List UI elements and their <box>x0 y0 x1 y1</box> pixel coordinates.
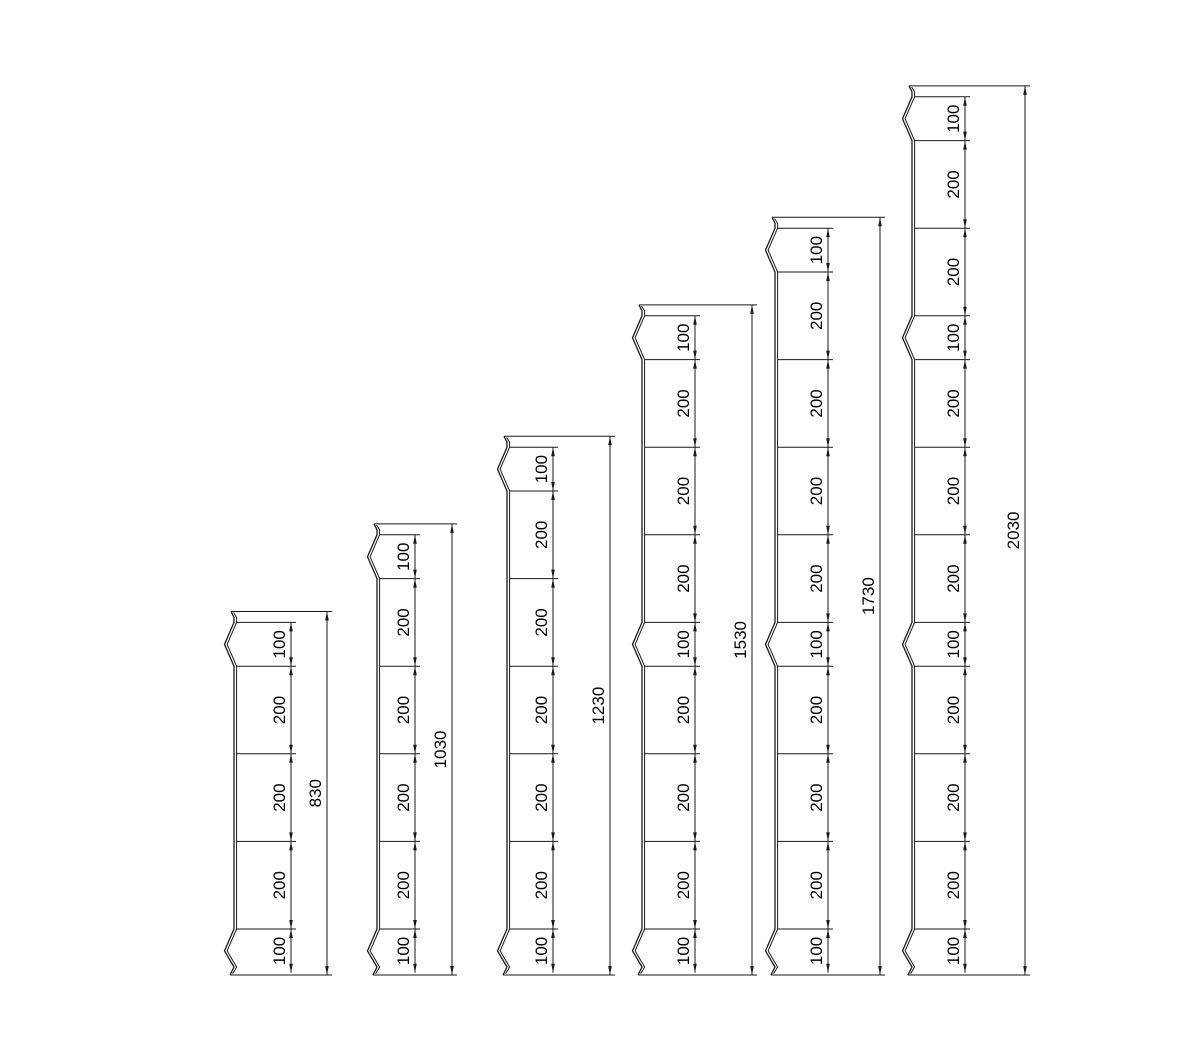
dimension-arrow <box>551 579 555 588</box>
overall-dim-label: 1530 <box>731 621 750 659</box>
dimension-arrow <box>963 97 967 106</box>
dimension-arrow <box>551 491 555 500</box>
dimension-arrow <box>289 754 293 763</box>
segment-dim-label: 200 <box>807 302 826 330</box>
segment-dim-label: 100 <box>270 937 289 965</box>
dimension-arrow <box>693 438 697 447</box>
dimension-arrow <box>413 841 417 850</box>
profile-column-1530: 1002002002001002002002001001530 <box>633 305 758 975</box>
dimension-arrow <box>826 438 830 447</box>
dimension-arrow <box>413 920 417 929</box>
dimension-arrow <box>413 929 417 938</box>
segment-dim-label: 200 <box>807 783 826 811</box>
profile-outline-inner <box>905 87 915 974</box>
segment-dim-label: 100 <box>532 937 551 965</box>
dimension-arrow <box>826 272 830 281</box>
profile-column-1230: 1002002002002002001001230 <box>498 436 616 975</box>
dimension-arrow <box>963 132 967 141</box>
dimension-arrow <box>750 966 754 975</box>
dimension-arrow <box>693 613 697 622</box>
dimension-arrow <box>963 841 967 850</box>
segment-dim-label: 200 <box>532 871 551 899</box>
dimension-arrow <box>289 964 293 973</box>
profile-outline-outer <box>225 611 235 975</box>
profile-outline-inner <box>500 437 510 973</box>
dimension-arrow <box>826 745 830 754</box>
dimension-arrow <box>826 447 830 456</box>
dimension-arrow <box>826 613 830 622</box>
dimension-arrow <box>1023 966 1027 975</box>
dimension-arrow <box>693 754 697 763</box>
profile-outline-inner <box>370 525 380 974</box>
dimension-arrow <box>826 929 830 938</box>
profile-outline-outer <box>498 436 508 975</box>
segment-dim-label: 200 <box>807 477 826 505</box>
dimension-arrow <box>551 964 555 973</box>
dimension-arrow <box>693 351 697 360</box>
dimension-arrow <box>826 263 830 272</box>
dimension-arrow <box>963 964 967 973</box>
segment-dim-label: 100 <box>674 937 693 965</box>
overall-dim-label: 2030 <box>1004 512 1023 550</box>
segment-dim-label: 200 <box>807 871 826 899</box>
segment-dim-label: 100 <box>944 937 963 965</box>
segment-dim-label: 200 <box>270 783 289 811</box>
profile-column-1030: 1002002002002001001030 <box>368 524 458 975</box>
dimension-arrow <box>693 535 697 544</box>
segment-dim-label: 100 <box>807 236 826 264</box>
segment-dim-label: 200 <box>944 389 963 417</box>
dimension-arrow <box>826 351 830 360</box>
dimension-arrow <box>693 316 697 325</box>
dimension-arrow <box>450 524 454 533</box>
dimension-arrow <box>551 570 555 579</box>
dimension-arrow <box>450 966 454 975</box>
technical-drawing-page: 1002002002001008301002002002002001001030… <box>0 0 1201 1048</box>
dimension-arrow <box>608 436 612 445</box>
dimension-arrow <box>551 482 555 491</box>
dimension-arrow <box>826 841 830 850</box>
profile-outline-outer <box>766 217 776 975</box>
dimension-arrow <box>826 666 830 675</box>
dimension-arrow <box>289 841 293 850</box>
segment-dim-label: 200 <box>532 783 551 811</box>
overall-dim-label: 1230 <box>589 687 608 725</box>
dimension-arrow <box>963 526 967 535</box>
dimension-arrow <box>551 841 555 850</box>
dimension-arrow <box>413 754 417 763</box>
dimension-arrow <box>551 832 555 841</box>
profile-outline-inner <box>635 306 645 974</box>
segment-dim-label: 100 <box>394 543 413 571</box>
dimension-arrow <box>878 966 882 975</box>
overall-dim-label: 830 <box>306 779 325 807</box>
segment-dim-label: 200 <box>270 871 289 899</box>
dimension-arrow <box>826 964 830 973</box>
dimension-arrow <box>693 447 697 456</box>
segment-dim-label: 200 <box>944 258 963 286</box>
dimension-arrow <box>693 964 697 973</box>
segment-dim-label: 100 <box>944 105 963 133</box>
dimension-arrow <box>963 535 967 544</box>
segment-dim-label: 200 <box>807 389 826 417</box>
dimension-arrow <box>826 622 830 631</box>
segment-dim-label: 200 <box>394 783 413 811</box>
dimension-arrow <box>413 964 417 973</box>
dimension-arrow <box>963 351 967 360</box>
segment-dim-label: 100 <box>674 324 693 352</box>
dimension-arrow <box>413 666 417 675</box>
dimension-arrow <box>413 745 417 754</box>
segment-dim-label: 200 <box>674 477 693 505</box>
dimension-arrow <box>693 841 697 850</box>
dimension-arrow <box>750 305 754 314</box>
dimension-arrow <box>693 832 697 841</box>
dimension-arrow <box>693 622 697 631</box>
profile-outline-inner <box>227 613 237 974</box>
dimension-arrow <box>693 745 697 754</box>
dimension-arrow <box>551 666 555 675</box>
dimension-arrow <box>826 920 830 929</box>
dimension-arrow <box>963 832 967 841</box>
dimension-arrow <box>289 920 293 929</box>
dimension-arrow <box>551 447 555 456</box>
segment-dim-label: 200 <box>270 696 289 724</box>
dimension-arrow <box>693 929 697 938</box>
dimension-arrow <box>413 579 417 588</box>
dimension-arrow <box>551 745 555 754</box>
dimension-arrow <box>289 622 293 631</box>
dimension-arrow <box>413 570 417 579</box>
segment-dim-label: 200 <box>394 696 413 724</box>
segment-dim-label: 200 <box>807 696 826 724</box>
segment-dim-label: 100 <box>532 455 551 483</box>
dimension-arrow <box>963 657 967 666</box>
segment-dim-label: 200 <box>532 696 551 724</box>
dimension-arrow <box>826 754 830 763</box>
dimension-arrow <box>963 307 967 316</box>
dimension-arrow <box>963 745 967 754</box>
dimension-arrow <box>826 657 830 666</box>
dimension-arrow <box>826 526 830 535</box>
segment-dim-label: 200 <box>394 608 413 636</box>
dimension-arrow <box>551 754 555 763</box>
dimension-arrow <box>963 447 967 456</box>
segment-dim-label: 200 <box>674 564 693 592</box>
dimension-arrow <box>551 657 555 666</box>
dimension-arrow <box>963 613 967 622</box>
segment-dim-label: 200 <box>944 783 963 811</box>
segment-dim-label: 200 <box>674 871 693 899</box>
dimension-arrow <box>826 832 830 841</box>
dimension-arrow <box>693 920 697 929</box>
dimension-arrow <box>963 219 967 228</box>
dimension-arrow <box>693 526 697 535</box>
dimension-arrow <box>289 832 293 841</box>
dimension-arrow <box>325 611 329 620</box>
overall-dim-label: 1730 <box>859 577 878 615</box>
dimension-arrow <box>551 920 555 929</box>
dimension-arrow <box>826 228 830 237</box>
segment-dim-label: 200 <box>944 564 963 592</box>
segment-dim-label: 200 <box>674 389 693 417</box>
segment-dim-label: 100 <box>394 937 413 965</box>
profile-column-2030: 1002002001002002002001002002002001002030 <box>903 86 1031 975</box>
dimension-arrow <box>289 929 293 938</box>
profile-column-830: 100200200200100830 <box>225 611 333 975</box>
dimension-arrow <box>963 622 967 631</box>
dimension-arrow <box>608 966 612 975</box>
segment-dim-label: 100 <box>807 630 826 658</box>
segment-dim-label: 200 <box>944 170 963 198</box>
dimension-arrow <box>413 832 417 841</box>
palisade-post-drawing: 1002002002001008301002002002002001001030… <box>0 0 1201 1048</box>
segment-dim-label: 100 <box>944 324 963 352</box>
segment-dim-label: 200 <box>532 608 551 636</box>
dimension-arrow <box>413 657 417 666</box>
segment-dim-label: 100 <box>270 630 289 658</box>
dimension-arrow <box>878 217 882 226</box>
segment-dim-label: 200 <box>944 477 963 505</box>
dimension-arrow <box>963 929 967 938</box>
dimension-arrow <box>826 535 830 544</box>
segment-dim-label: 100 <box>674 630 693 658</box>
segment-dim-label: 200 <box>807 564 826 592</box>
dimension-arrow <box>289 657 293 666</box>
overall-dim-label: 1030 <box>431 731 450 769</box>
dimension-arrow <box>325 966 329 975</box>
dimension-arrow <box>693 657 697 666</box>
dimension-arrow <box>963 666 967 675</box>
profile-outline-outer <box>368 524 378 975</box>
dimension-arrow <box>289 745 293 754</box>
dimension-arrow <box>693 666 697 675</box>
segment-dim-label: 200 <box>944 696 963 724</box>
dimension-arrow <box>693 360 697 369</box>
segment-dim-label: 100 <box>807 937 826 965</box>
dimension-arrow <box>413 535 417 544</box>
segment-dim-label: 100 <box>944 630 963 658</box>
dimension-arrow <box>963 141 967 150</box>
dimension-arrow <box>963 360 967 369</box>
dimension-arrow <box>963 438 967 447</box>
segment-dim-label: 200 <box>944 871 963 899</box>
dimension-arrow <box>1023 86 1027 95</box>
profile-outline-inner <box>768 218 778 973</box>
profile-column-1730: 1002002002002001002002002001001730 <box>766 217 886 975</box>
dimension-arrow <box>963 754 967 763</box>
segment-dim-label: 200 <box>674 783 693 811</box>
dimension-arrow <box>963 920 967 929</box>
profile-outline-outer <box>903 86 913 975</box>
dimension-arrow <box>963 228 967 237</box>
segment-dim-label: 200 <box>394 871 413 899</box>
segment-dim-label: 200 <box>674 696 693 724</box>
segment-dim-label: 200 <box>532 521 551 549</box>
dimension-arrow <box>963 316 967 325</box>
dimension-arrow <box>826 360 830 369</box>
dimension-arrow <box>289 666 293 675</box>
dimension-arrow <box>551 929 555 938</box>
